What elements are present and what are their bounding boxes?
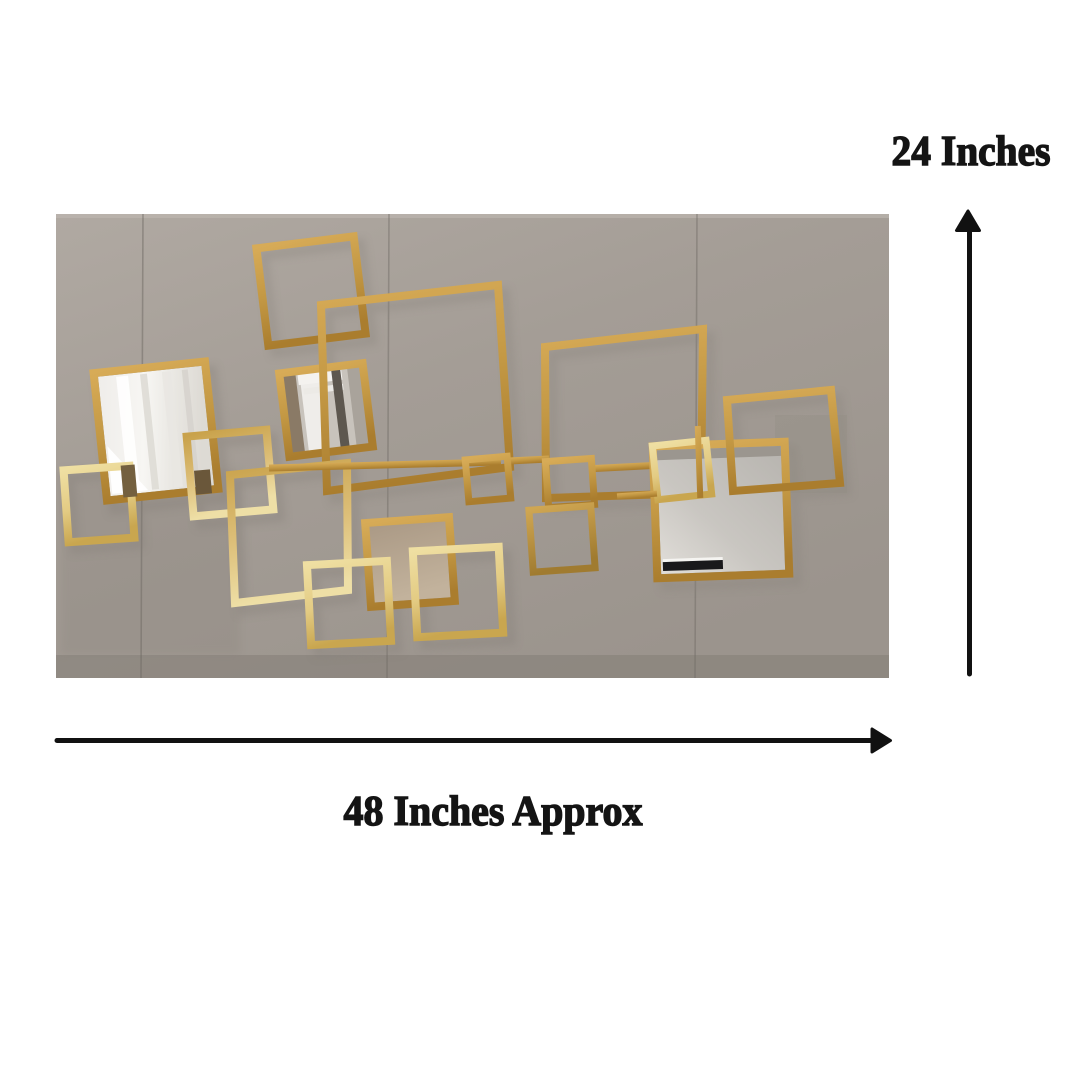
svg-text:48 Inches Approx: 48 Inches Approx	[344, 789, 643, 835]
svg-text:24 Inches: 24 Inches	[892, 129, 1051, 175]
